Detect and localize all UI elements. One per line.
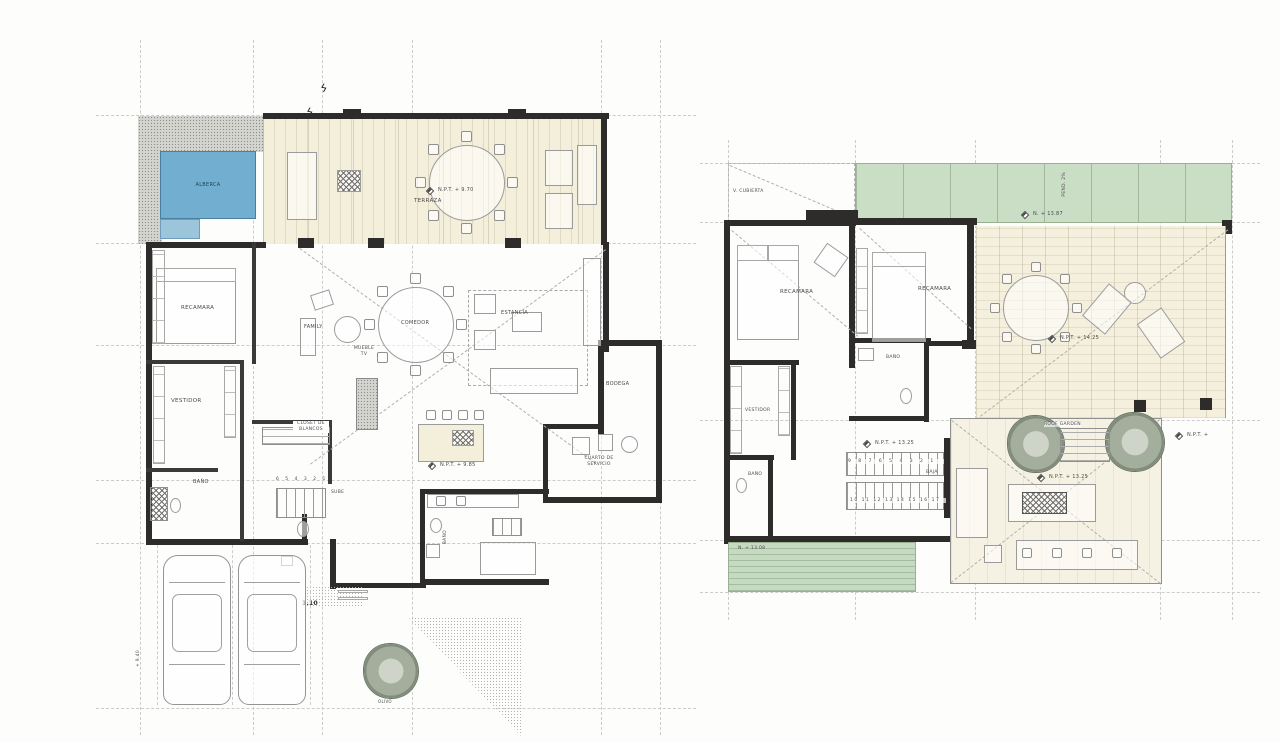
terrace-column	[1200, 398, 1212, 410]
chair	[415, 177, 426, 188]
room-label-recamara: RECAMARA	[181, 305, 214, 312]
armchair	[474, 294, 496, 314]
chair	[1072, 303, 1082, 313]
wall-segment	[791, 360, 796, 460]
room-label-alberca: ALBERCA	[167, 182, 249, 188]
fire-pit	[1022, 492, 1067, 514]
chair	[428, 210, 439, 221]
chair	[461, 223, 472, 234]
wall-segment	[603, 242, 609, 352]
armchair	[474, 330, 496, 350]
toilet	[170, 498, 181, 513]
car-windshield	[244, 582, 300, 583]
car-rear-window	[169, 664, 225, 665]
upper-floor-plan: PEND. 2% N. + 13.87 V. CUBIERTA RECAMARA…	[700, 0, 1280, 742]
floor-plan-sheet: { "colors": { "pool": "#72aecf", "pool_s…	[0, 0, 1280, 742]
room-label-bodega: BODEGA	[606, 381, 629, 387]
room-label-bano: BAÑO	[443, 530, 448, 544]
armchair	[813, 243, 848, 278]
chair	[377, 352, 388, 363]
planter-bench	[1060, 428, 1110, 462]
wall-segment	[768, 455, 773, 540]
label-roof-garden: ROOF GARDEN	[1044, 422, 1081, 427]
wall-segment	[330, 539, 336, 589]
gravel-patch	[408, 617, 522, 737]
break-line-icon: ϟ	[319, 81, 329, 95]
parking-line	[232, 545, 233, 705]
stool	[458, 410, 468, 420]
toilet	[430, 518, 442, 533]
level-marker-icon	[1175, 432, 1183, 440]
wall-segment	[543, 424, 604, 429]
level-label: N.P.T. + 9.70	[438, 187, 474, 193]
room-label-vestidor: VESTIDOR	[745, 408, 770, 413]
gridline	[700, 592, 1260, 593]
wall-segment	[851, 218, 977, 225]
wall-segment	[849, 416, 929, 421]
room-label-family: FAMILY	[304, 324, 323, 330]
chair	[1002, 332, 1012, 342]
chair	[1060, 274, 1070, 284]
level-label: N.P.T. + 13.25	[875, 440, 914, 446]
wall-segment	[240, 360, 244, 541]
bed-pillow	[737, 245, 768, 261]
pool-step	[160, 219, 200, 239]
room-label-bano: BAÑO	[193, 479, 209, 485]
wall-segment	[656, 340, 662, 503]
family-table	[334, 316, 361, 343]
sink	[456, 496, 466, 506]
car	[238, 555, 306, 705]
gridline	[96, 708, 696, 709]
stool	[442, 410, 452, 420]
toilet	[736, 478, 747, 493]
stairs	[276, 488, 326, 518]
sofa-cushion	[1022, 548, 1032, 558]
room-label-bano: BAÑO	[748, 472, 762, 477]
level-label: N.P.T. + 14.25	[1060, 335, 1099, 341]
room-label-terraza: TERRAZA	[414, 198, 442, 205]
chair	[1031, 344, 1041, 354]
wall-segment	[420, 489, 425, 585]
entry-step	[338, 590, 368, 593]
wall-segment	[420, 579, 549, 585]
sofa	[490, 368, 578, 394]
bed-pillow	[872, 252, 926, 267]
chair	[494, 144, 505, 155]
chair	[443, 286, 454, 297]
room-label-vestidor: VESTIDOR	[171, 398, 202, 405]
chair	[456, 319, 467, 330]
chair	[990, 303, 1000, 313]
room-label-recamara: RECAMARA	[918, 286, 951, 293]
tv-wall	[356, 378, 378, 430]
room-label-cuarto-servicio: CUARTO DE SERVICIO	[582, 456, 616, 468]
washer	[598, 434, 613, 451]
parking-line	[310, 545, 311, 705]
console	[583, 258, 601, 346]
level-label: N. + 13.08	[738, 546, 765, 551]
terrace-cabinet	[577, 145, 597, 205]
gridline	[1232, 140, 1233, 620]
garden-sofa	[956, 468, 988, 538]
sofa-cushion	[1082, 548, 1092, 558]
chair	[507, 177, 518, 188]
chair	[428, 144, 439, 155]
wall-segment	[849, 220, 855, 368]
toilet	[297, 521, 309, 537]
outdoor-sofa	[287, 152, 317, 220]
wall-segment	[598, 340, 662, 346]
wall-segment	[343, 109, 361, 119]
lounge-chair	[545, 193, 573, 229]
wall-segment	[263, 113, 609, 119]
wall-segment	[724, 360, 799, 365]
sofa-cushion	[1112, 548, 1122, 558]
level-label: + 9.40	[136, 650, 141, 667]
wall-segment	[962, 340, 976, 349]
chair	[364, 319, 375, 330]
closet-shelving	[224, 366, 236, 438]
tree	[364, 644, 418, 698]
wall-segment	[368, 238, 384, 248]
stair-numbers: 10 11 12 13 14 15 16 17	[850, 498, 946, 503]
terrace-column	[1134, 400, 1146, 412]
wall-segment	[924, 338, 929, 422]
closet-shelving	[153, 366, 165, 464]
service-bed	[480, 542, 536, 575]
cooktop	[452, 430, 474, 446]
closet-shelving	[856, 248, 868, 334]
car-rear-window	[244, 664, 300, 665]
car-roof	[172, 594, 222, 652]
grill	[337, 170, 361, 192]
shower	[150, 487, 168, 521]
stair-numbers: 6 5 4 3 2 1	[276, 477, 328, 482]
wall-segment	[724, 455, 774, 460]
wall-segment	[598, 340, 604, 435]
chair	[494, 210, 505, 221]
room-label-bano: BAÑO	[886, 355, 900, 360]
stair-numbers: 9 8 7 6 5 4 3 2 1	[848, 459, 944, 464]
chair	[1002, 274, 1012, 284]
label-sube: SUBE	[331, 490, 344, 495]
label-pendiente: PEND. 2%	[1062, 172, 1067, 197]
lounge-chair	[545, 150, 573, 186]
closet	[492, 518, 522, 536]
label-baja: BAJA	[926, 470, 938, 475]
washbasin	[858, 348, 874, 361]
parking-line	[157, 545, 158, 705]
kitchen-island	[418, 424, 484, 462]
wall-segment	[543, 497, 662, 503]
ground-floor-plan: ALBERCA ϟ ϟ N.P.T. + 9.70 TERRAZA	[0, 0, 720, 742]
chair	[377, 286, 388, 297]
entry-step	[338, 597, 368, 600]
wall-segment	[146, 242, 266, 248]
level-label: N.P.T. +	[1187, 432, 1208, 438]
car-roof	[247, 594, 297, 652]
room-label-estancia: ESTANCIA	[501, 310, 528, 316]
level-label: N.P.T. + 13.25	[1049, 474, 1088, 480]
chair	[410, 365, 421, 376]
closet-shelving	[778, 366, 790, 436]
stool	[426, 410, 436, 420]
stool	[474, 410, 484, 420]
chair	[410, 273, 421, 284]
room-label-comedor: COMEDOR	[401, 320, 429, 326]
level-label: N.P.T. + 9.85	[440, 462, 476, 468]
chair	[461, 131, 472, 142]
closet-shelving	[730, 366, 742, 454]
vegetation-strip	[138, 116, 162, 244]
level-marker-icon	[863, 440, 871, 448]
level-label: N. + 13.87	[1033, 211, 1063, 217]
wall-segment	[601, 113, 607, 245]
side-table	[984, 545, 1002, 563]
bed-pillow	[156, 268, 236, 282]
tree	[1106, 413, 1164, 471]
wall-segment	[252, 242, 256, 364]
tree-label: OLIVO	[378, 700, 392, 705]
wall-segment	[298, 238, 314, 248]
label-mueble-tv: MUEBLE TV	[352, 346, 376, 358]
wall-segment	[146, 360, 244, 364]
wall-segment	[508, 109, 526, 119]
chair	[443, 352, 454, 363]
chair	[1031, 262, 1041, 272]
level-marker-icon	[428, 462, 436, 470]
label-closet-blancos: CLOSET DE BLANCOS	[293, 421, 329, 433]
boiler	[621, 436, 638, 453]
wardrobe	[152, 250, 165, 344]
car	[163, 555, 231, 705]
wall-segment	[505, 238, 521, 248]
car-windshield	[169, 582, 225, 583]
terrace-dining-table	[1003, 275, 1069, 341]
utility-sink	[572, 437, 590, 455]
bed-pillow	[768, 245, 799, 261]
washbasin	[426, 544, 440, 558]
sink	[436, 496, 446, 506]
wall-segment	[146, 539, 308, 545]
room-label-recamara: RECAMARA	[780, 289, 813, 296]
label-v-cubierta: V. CUBIERTA	[733, 189, 764, 194]
gridline	[96, 480, 696, 481]
wall-segment	[146, 468, 218, 472]
armchair	[310, 289, 334, 310]
toilet	[900, 388, 912, 404]
stairs	[846, 482, 944, 510]
sofa-cushion	[1052, 548, 1062, 558]
